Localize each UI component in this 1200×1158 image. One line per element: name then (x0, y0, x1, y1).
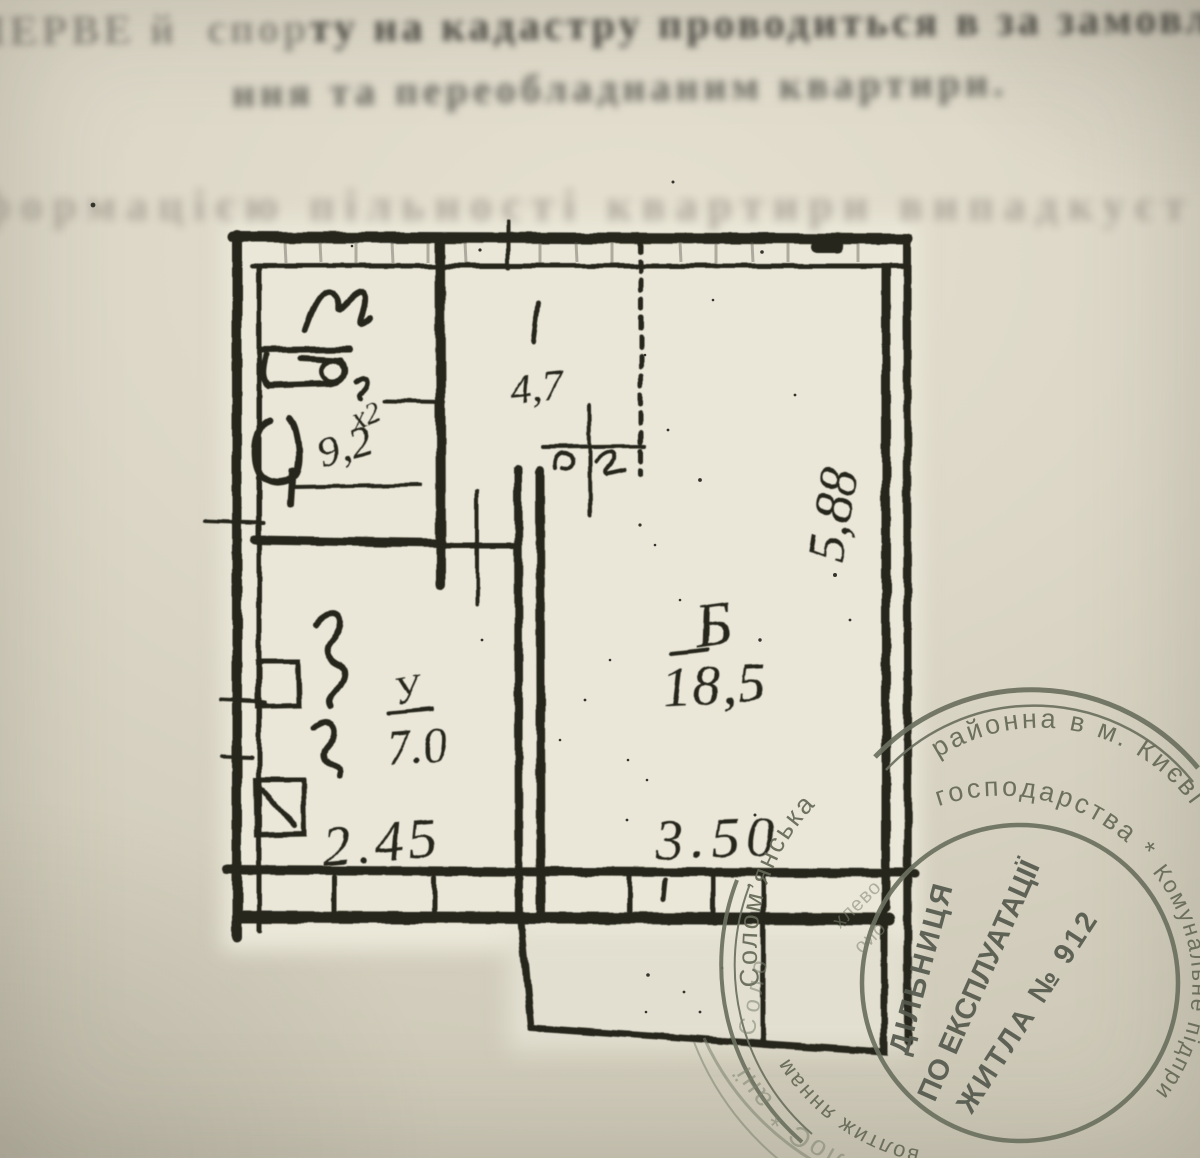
svg-text:волтиж яннамирту: волтиж яннамирту (0, 0, 921, 1158)
svg-text:Комунальне підприємство: Комунальне підприємство (0, 0, 1200, 1106)
svg-text:господарства *: господарства * (931, 772, 1163, 867)
svg-text:У: У (390, 666, 427, 713)
svg-text:5,88: 5,88 (795, 463, 870, 566)
svg-text:7.0: 7.0 (385, 718, 449, 775)
svg-text:4,7: 4,7 (508, 363, 567, 414)
svg-text:2.45: 2.45 (320, 806, 445, 879)
svg-text:18,5: 18,5 (660, 652, 769, 719)
